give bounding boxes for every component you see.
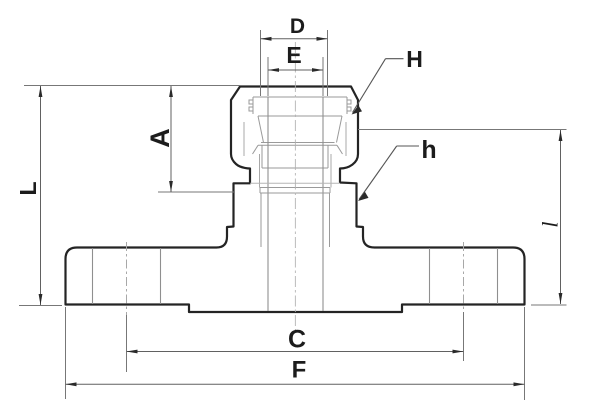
svg-text:l: l [538,221,563,227]
svg-text:D: D [290,15,305,38]
svg-text:L: L [15,181,41,195]
svg-text:h: h [421,136,436,164]
svg-text:E: E [286,42,301,68]
svg-text:C: C [288,326,306,354]
svg-text:F: F [292,357,307,384]
svg-text:H: H [406,46,423,72]
svg-text:A: A [145,128,175,148]
